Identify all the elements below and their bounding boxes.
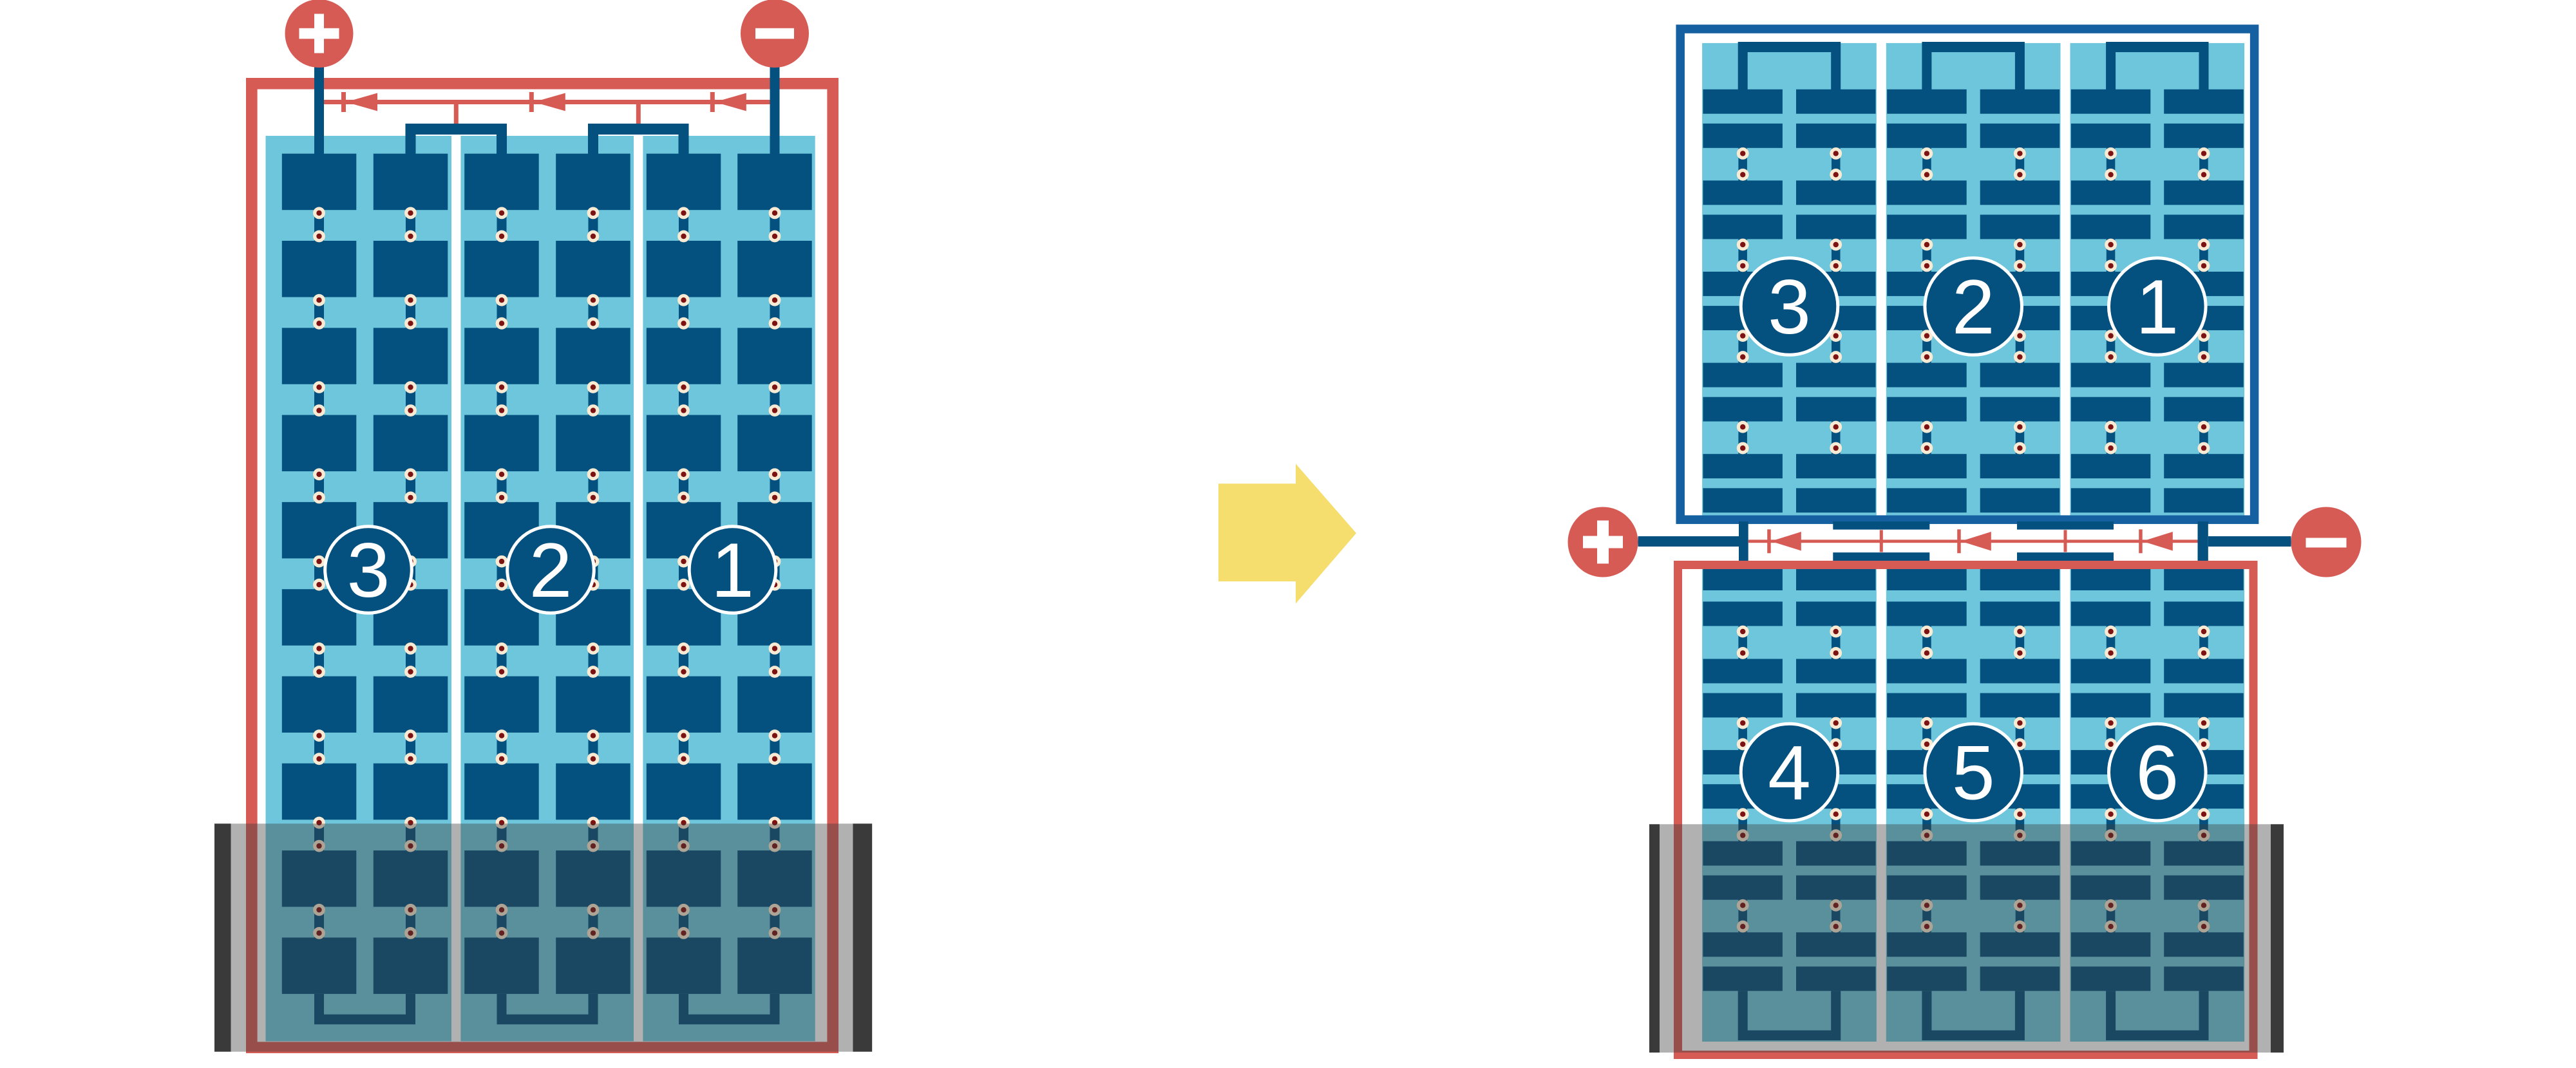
svg-text:5: 5 — [1952, 730, 1995, 816]
svg-text:3: 3 — [1768, 264, 1811, 350]
svg-text:6: 6 — [2136, 730, 2179, 816]
svg-text:4: 4 — [1768, 730, 1811, 816]
svg-text:1: 1 — [711, 527, 754, 614]
svg-text:2: 2 — [1952, 264, 1995, 350]
svg-text:2: 2 — [529, 527, 573, 614]
svg-text:3: 3 — [347, 527, 390, 614]
svg-text:1: 1 — [2136, 264, 2179, 350]
